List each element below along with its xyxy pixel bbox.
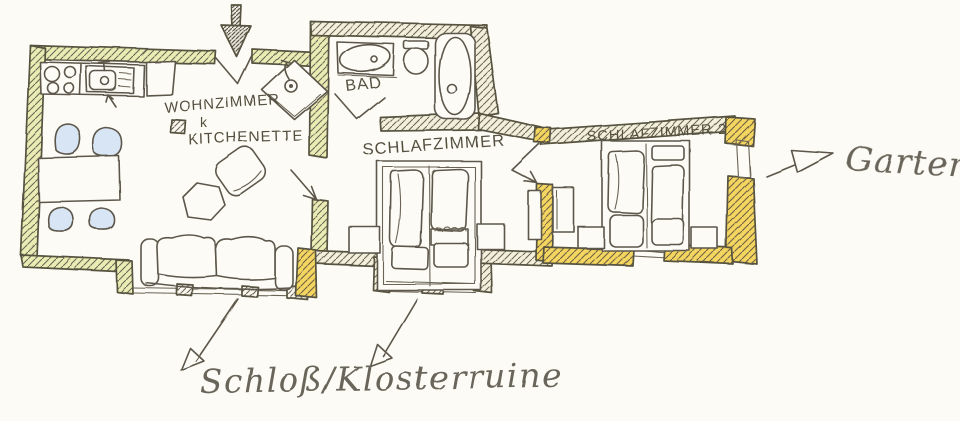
bed1-nightstand-right [477,224,504,249]
dining-chair [48,207,73,231]
coffee-table [183,183,225,220]
room-label-amp: k [200,114,208,130]
kitchen-cabinet [146,61,175,95]
castle-arrow-2 [383,299,417,356]
counter-divider [80,64,81,94]
castle-arrow-1 [196,299,238,361]
wall-passage-pier [311,199,328,254]
bedroom1-wardrobe [528,191,541,239]
bed1-blanket-left [392,246,429,269]
bath-sink-counter [337,42,394,75]
room-label-kitchenette: KITCHENETTE [188,127,304,148]
wall-bay-right-living [296,248,317,298]
bedroom1-furniture [349,161,541,290]
entrance-door-swing [216,55,252,84]
garden-arrow-tail [766,163,798,176]
sofa-armrest [275,246,293,290]
room-label-bad: BAD [344,74,382,95]
column [170,119,185,133]
bed1-nightstand-left [349,227,380,253]
bedroom2-furniture [553,141,718,251]
floor-plan-canvas: WOHNZIMMER k KITCHENETTE BAD SCHLAFZIMME… [0,0,960,421]
wall-top-left [30,45,216,64]
bedroom1-door-arrow [291,170,316,199]
room-label-schlafzimmer: SCHLAFZIMMER [362,131,505,159]
wall-bottom-left [21,255,129,272]
wall-top-entry-right [252,49,316,66]
bed2-nightstand-right [692,228,718,249]
bathroom-door-swing [335,94,384,119]
wall-bed2-topright-pier [725,117,755,146]
bed2-pillow-right [652,146,684,160]
sink-arrow [106,95,116,107]
bed2-blanket-right [652,219,684,245]
bed1-blanket-right [434,243,468,267]
pier-bay-2 [242,286,258,297]
kitchenette [40,61,185,133]
annotation-schloss: Schloß/Klosterruine [199,356,563,401]
room-label-wohnzimmer: WOHNZIMMER [163,91,281,116]
entrance-arrow-icon [221,25,251,57]
floor-plan-sketch: WOHNZIMMER k KITCHENETTE BAD SCHLAFZIMME… [0,0,960,421]
wall-bay-step-pier [116,260,133,294]
sofa [141,235,293,290]
labels: WOHNZIMMER k KITCHENETTE BAD SCHLAFZIMME… [163,74,960,401]
dining-chair [93,128,122,157]
dining-table [38,156,120,202]
entrance-arrow-shaft [231,5,241,27]
toilet-bowl [404,48,428,74]
garden-arrow-icon [791,150,833,172]
bedroom2-wardrobe [553,188,574,232]
sofa-cushion [216,237,275,279]
bed2-nightstand-left [578,227,604,248]
bathtub [435,33,475,119]
bedroom2-door-arrow [512,144,539,183]
wall-divider-top-pier [534,127,551,143]
dining-chair [55,124,80,154]
bed2-blanket-left [610,215,643,247]
sofa-cushion [157,235,217,278]
dining-chair [89,208,114,229]
shower-head-dot [289,84,293,88]
annotation-garten: Garten [845,139,960,186]
